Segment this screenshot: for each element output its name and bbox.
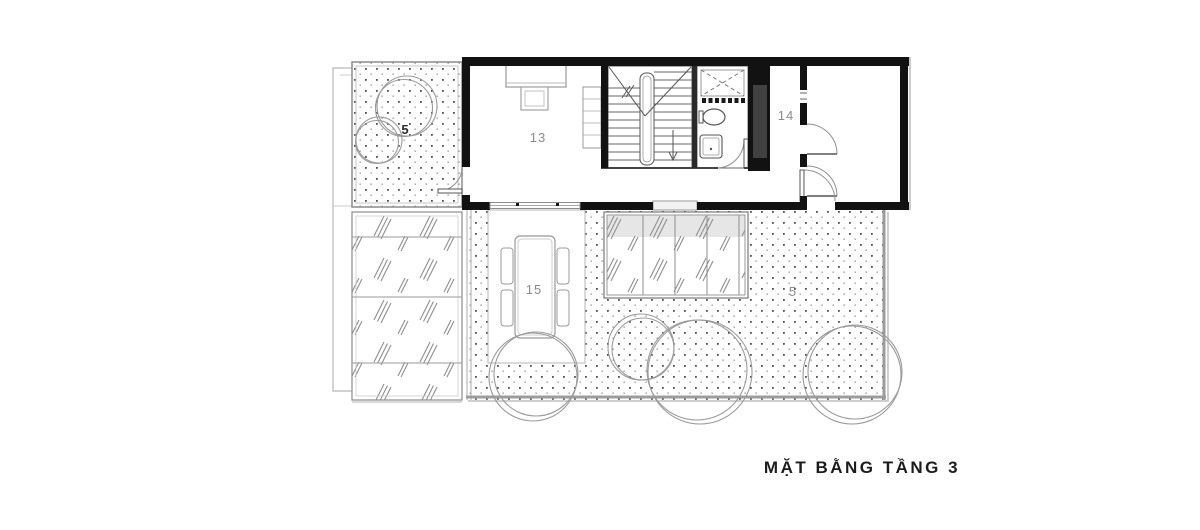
- glass-canopy: [604, 201, 748, 298]
- sink-icon: [700, 135, 722, 158]
- glass-roof-left: [352, 212, 462, 402]
- plan-title: MẶT BẰNG TẦNG 3: [764, 458, 960, 477]
- label-room-15: 15: [526, 282, 542, 297]
- staircase: [608, 66, 692, 168]
- chair-icon: [521, 87, 548, 110]
- toilet-icon: [699, 109, 725, 125]
- label-room-14: 14: [778, 108, 794, 123]
- bathroom: [697, 66, 748, 168]
- floor-plan-page: 5 13 14 15 5 MẶT BẰNG TẦNG 3: [0, 0, 1200, 530]
- door-leaf: [438, 189, 462, 193]
- desk: [506, 64, 566, 87]
- label-terrace-upper: 5: [401, 122, 408, 137]
- shelf-cabinet: [583, 87, 601, 148]
- label-room-13: 13: [530, 130, 546, 145]
- label-terrace-lower: 5: [789, 284, 797, 299]
- door-leaf: [744, 139, 748, 168]
- floor-plan-canvas: 5 13 14 15 5 MẶT BẰNG TẦNG 3: [0, 0, 1200, 530]
